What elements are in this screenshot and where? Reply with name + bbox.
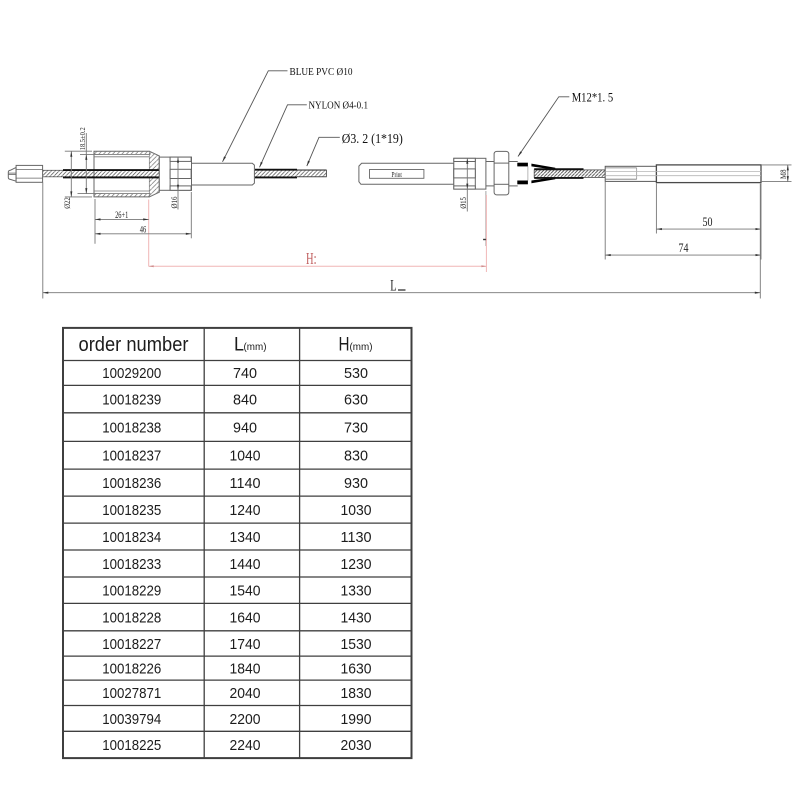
svg-text:1740: 1740 bbox=[230, 636, 261, 653]
svg-text:10018235: 10018235 bbox=[102, 502, 161, 519]
svg-text:1430: 1430 bbox=[341, 610, 372, 627]
svg-text:1630: 1630 bbox=[341, 661, 372, 678]
svg-text:10018236: 10018236 bbox=[102, 475, 161, 492]
svg-text:L: L bbox=[390, 278, 396, 295]
svg-text:BLUE PVC Ø10: BLUE PVC Ø10 bbox=[290, 66, 353, 78]
svg-text:10018233: 10018233 bbox=[102, 556, 161, 573]
svg-text:930: 930 bbox=[344, 475, 368, 492]
svg-text:2240: 2240 bbox=[230, 737, 261, 754]
svg-text:1040: 1040 bbox=[230, 448, 261, 465]
svg-text:NYLON Ø4-0.1: NYLON Ø4-0.1 bbox=[309, 100, 369, 112]
svg-text:10027871: 10027871 bbox=[102, 685, 161, 702]
svg-text:840: 840 bbox=[233, 392, 257, 409]
svg-text:10018239: 10018239 bbox=[102, 392, 161, 409]
svg-text:940: 940 bbox=[233, 420, 257, 437]
svg-text:Ø3. 2 (1*19): Ø3. 2 (1*19) bbox=[342, 131, 403, 146]
svg-text:2040: 2040 bbox=[230, 685, 261, 702]
svg-text:Ø22: Ø22 bbox=[62, 197, 72, 209]
svg-text:10018238: 10018238 bbox=[102, 420, 161, 437]
svg-text:Ø15: Ø15 bbox=[458, 197, 468, 209]
svg-text:1840: 1840 bbox=[230, 661, 261, 678]
svg-text:10018229: 10018229 bbox=[102, 583, 161, 600]
svg-text:2030: 2030 bbox=[341, 737, 372, 754]
svg-text:1140: 1140 bbox=[230, 475, 261, 492]
svg-text:H:: H: bbox=[306, 249, 317, 268]
svg-text:46: 46 bbox=[140, 224, 147, 234]
svg-text:10018234: 10018234 bbox=[102, 529, 161, 546]
svg-text:10018228: 10018228 bbox=[102, 610, 161, 627]
svg-text:1030: 1030 bbox=[341, 502, 372, 519]
svg-text:H: H bbox=[339, 335, 350, 356]
svg-text:Print: Print bbox=[391, 171, 402, 179]
svg-text:10029200: 10029200 bbox=[102, 365, 161, 382]
svg-text:1530: 1530 bbox=[341, 636, 372, 653]
svg-text:M12*1. 5: M12*1. 5 bbox=[572, 89, 614, 104]
svg-text:2200: 2200 bbox=[230, 711, 261, 728]
svg-text:74: 74 bbox=[679, 240, 689, 255]
svg-text:1330: 1330 bbox=[341, 583, 372, 600]
svg-text:1340: 1340 bbox=[230, 529, 261, 546]
svg-text:730: 730 bbox=[344, 420, 368, 437]
svg-text:630: 630 bbox=[344, 392, 368, 409]
svg-text:L: L bbox=[234, 335, 244, 356]
svg-text:10039794: 10039794 bbox=[102, 711, 161, 728]
svg-text:1540: 1540 bbox=[230, 583, 261, 600]
svg-text:order number: order number bbox=[79, 334, 189, 356]
svg-text:1830: 1830 bbox=[341, 685, 372, 702]
svg-text:1130: 1130 bbox=[341, 529, 372, 546]
svg-text:1230: 1230 bbox=[341, 556, 372, 573]
svg-text:M8: M8 bbox=[779, 170, 788, 180]
svg-text:1440: 1440 bbox=[230, 556, 261, 573]
svg-text:530: 530 bbox=[344, 365, 368, 382]
svg-text:10018227: 10018227 bbox=[102, 636, 161, 653]
svg-text:1640: 1640 bbox=[230, 610, 261, 627]
svg-text:26+1: 26+1 bbox=[115, 210, 128, 220]
svg-text:10018226: 10018226 bbox=[102, 661, 161, 678]
svg-text:830: 830 bbox=[344, 448, 368, 465]
svg-text:1990: 1990 bbox=[341, 711, 372, 728]
svg-text:(mm): (mm) bbox=[244, 341, 267, 353]
svg-text:18.5±0.2: 18.5±0.2 bbox=[79, 127, 87, 150]
svg-text:50: 50 bbox=[703, 214, 713, 229]
svg-text:1240: 1240 bbox=[230, 502, 261, 519]
svg-text:10018225: 10018225 bbox=[102, 737, 161, 754]
svg-text:740: 740 bbox=[233, 365, 257, 382]
svg-text:10018237: 10018237 bbox=[102, 448, 161, 465]
svg-text:Ø16: Ø16 bbox=[169, 197, 179, 209]
svg-text:(mm): (mm) bbox=[350, 341, 373, 353]
